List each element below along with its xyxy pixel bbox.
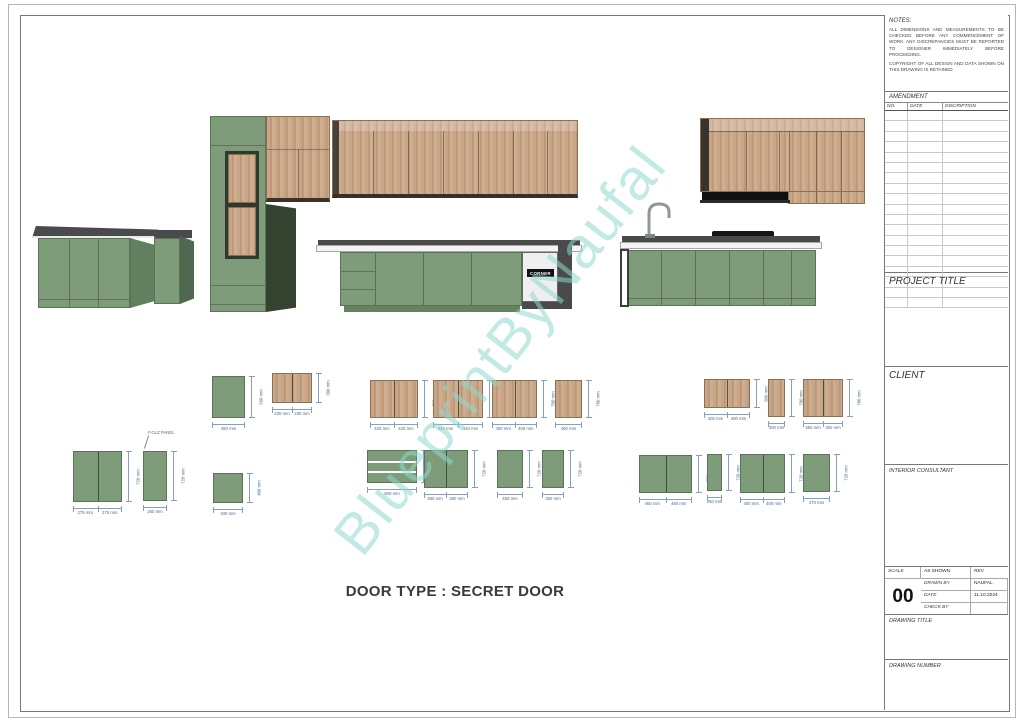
scale-value: AS SHOWN [921, 567, 971, 579]
door-panel-detail: 560 mm450 mm [212, 376, 259, 432]
door-panel-detail: 380 mm230 mm230 mm [272, 373, 326, 417]
notes-label: NOTES: [889, 18, 1004, 24]
width-dimension: 400 mm [213, 509, 243, 510]
wood-door-panel [272, 373, 312, 403]
door-panel-detail: 720 mm350 mm [542, 450, 578, 502]
height-dimension: 720 mm [728, 454, 729, 491]
height-dimension: 780 mm [588, 380, 589, 418]
date-value: 11.10.2024 [971, 591, 1008, 603]
green-door-panel [213, 473, 243, 503]
green-door-panel [497, 450, 523, 488]
width-dimension: 460 mm460 mm [639, 499, 692, 500]
width-dimension: 250 mm [707, 497, 722, 498]
door-panel-detail: 600 mm400 mm400 mm [704, 379, 764, 422]
drawing-title-label: DRAWING TITLE [889, 618, 1004, 624]
width-dimension: 275 mm275 mm [73, 508, 122, 509]
door-panel-detail: 780 mm400 mm400 mm [492, 380, 551, 432]
amendment-col-date: DATE [908, 103, 943, 111]
width-dimension: 470 mm [803, 498, 830, 499]
height-dimension: 560 mm [251, 376, 252, 418]
notes-paragraph-2: COPYRIGHT OF ALL DESIGN AND DATA SHOWN O… [889, 61, 1004, 73]
amendment-section: AMENDMENT NO. DATE DISCRIPTION [885, 92, 1008, 273]
drawn-by-label: DRAWN BY [921, 579, 971, 591]
wood-door-panel [803, 379, 843, 417]
width-dimension: 450 mm [497, 494, 523, 495]
panel-annotation: F.GLZ PANEL [148, 430, 175, 435]
interior-consultant-section: INTERIOR CONSULTANT [885, 465, 1008, 567]
amendment-row [885, 235, 1008, 245]
width-dimension: 400 mm400 mm [492, 424, 537, 425]
green-door-panel [143, 451, 167, 501]
amendment-row [885, 214, 1008, 224]
height-dimension: 780 mm [543, 380, 544, 418]
drawing-number-label: DRAWING NUMBER [889, 663, 1004, 669]
wood-door-panel [704, 379, 750, 408]
height-dimension: 720 mm [173, 451, 174, 501]
width-dimension: 460 mm [555, 424, 582, 425]
amendment-row [885, 246, 1008, 256]
client-label: CLIENT [889, 370, 1004, 381]
door-panel-detail: 780 mm350 mm350 mm [803, 379, 857, 431]
rev-label: REV [971, 567, 1008, 579]
green-door-panel [803, 454, 830, 492]
interior-consultant-label: INTERIOR CONSULTANT [889, 468, 1004, 474]
width-dimension: 400 mm400 mm [704, 414, 750, 415]
door-panel-detail: 720 mm260 mm [143, 451, 181, 515]
door-panel-detail: 720 mm250 mm [707, 454, 736, 505]
drawing-area: CORNER 720 mm275 mm275 mm720 mm260 mm560… [0, 0, 884, 724]
height-dimension: 720 mm [128, 451, 129, 502]
rev-value: 00 [885, 579, 921, 615]
door-panel-detail: 720 mm450 mm [497, 450, 537, 502]
amendment-row [885, 183, 1008, 193]
check-by-value [971, 603, 1008, 615]
amendment-row [885, 121, 1008, 131]
project-title-section: PROJECT TITLE [885, 273, 1008, 367]
amendment-row [885, 204, 1008, 214]
green-door-panel [424, 450, 468, 488]
notes-section: NOTES: ALL DIMENSIONS AND MEASUREMENTS T… [885, 15, 1008, 92]
drawing-caption: DOOR TYPE : SECRET DOOR [320, 583, 590, 600]
height-dimension: 780 mm [849, 379, 850, 417]
amendment-row [885, 256, 1008, 266]
door-panel-detail: 720 mm380 mm380 mm [424, 450, 482, 502]
width-dimension: 380 mm380 mm [424, 494, 468, 495]
faucet-icon [644, 200, 674, 240]
amendment-row [885, 131, 1008, 141]
green-door-panel [212, 376, 245, 418]
width-dimension: 450 mm [212, 424, 245, 425]
height-dimension: 780 mm [424, 380, 425, 418]
green-door-panel [73, 451, 122, 502]
width-dimension: 420 mm420 mm [370, 424, 418, 425]
date-label: DATE [921, 591, 971, 603]
door-panel-detail: 720 mm470 mm [803, 454, 844, 506]
drawn-by-value: NAUFAL [971, 579, 1008, 591]
door-panel-detail: 780 mm420 mm420 mm [370, 380, 432, 432]
height-dimension: 720 mm [836, 454, 837, 492]
height-dimension: 380 mm [318, 373, 319, 403]
project-title-label: PROJECT TITLE [889, 276, 1004, 287]
notes-paragraph-1: ALL DIMENSIONS AND MEASUREMENTS TO BE CH… [889, 27, 1004, 58]
door-panel-detail: 780 mm300 mm [768, 379, 799, 431]
green-door-panel [707, 454, 722, 491]
amendment-col-no: NO. [885, 103, 908, 111]
door-panel-detail: 720 mm275 mm275 mm [73, 451, 136, 516]
width-dimension: 230 mm230 mm [272, 409, 312, 410]
amendment-row [885, 173, 1008, 183]
door-panel-detail: 780 mm460 mm [555, 380, 596, 432]
corner-cabinet-label: CORNER [527, 269, 554, 277]
height-dimension: 720 mm [570, 450, 571, 488]
check-by-label: CHECK BY [921, 603, 971, 615]
height-dimension: 720 mm [791, 454, 792, 493]
door-panel-detail: 720 mm400 mm400 mm [740, 454, 799, 507]
door-details-layer: 720 mm275 mm275 mm720 mm260 mm560 mm450 … [0, 0, 884, 724]
door-panel-detail: 600 mm900 mm [367, 450, 431, 497]
drawing-title-section: DRAWING TITLE [885, 615, 1008, 660]
wood-door-panel [492, 380, 537, 418]
height-dimension: 400 mm [249, 473, 250, 503]
door-panel-detail: 400 mm400 mm [213, 473, 257, 517]
green-door-panel [639, 455, 692, 493]
height-dimension: 720 mm [474, 450, 475, 488]
title-block: NOTES: ALL DIMENSIONS AND MEASUREMENTS T… [884, 15, 1008, 710]
width-dimension: 440 mm440 mm [433, 424, 483, 425]
wood-door-panel [555, 380, 582, 418]
client-section: CLIENT [885, 367, 1008, 465]
width-dimension: 400 mm400 mm [740, 499, 785, 500]
wood-door-panel [370, 380, 418, 418]
drawing-number-section: DRAWING NUMBER [885, 660, 1008, 709]
door-panel-detail: 780 mm440 mm440 mm [433, 380, 497, 432]
height-dimension: 780 mm [489, 380, 490, 418]
width-dimension: 900 mm [367, 489, 417, 490]
height-dimension: 720 mm [529, 450, 530, 488]
scale-label: SCALE [885, 567, 921, 579]
wood-door-panel [433, 380, 483, 418]
wood-door-panel [768, 379, 785, 417]
amendment-col-description: DISCRIPTION [943, 103, 1009, 111]
height-dimension: 780 mm [791, 379, 792, 417]
amendment-row [885, 194, 1008, 204]
width-dimension: 260 mm [143, 507, 167, 508]
width-dimension: 350 mm [542, 494, 564, 495]
height-dimension: 720 mm [698, 455, 699, 493]
amendment-row [885, 225, 1008, 235]
amendment-label: AMENDMENT [885, 92, 1008, 103]
amendment-row [885, 111, 1008, 121]
width-dimension: 350 mm350 mm [803, 423, 843, 424]
green-door-panel [542, 450, 564, 488]
height-dimension: 600 mm [756, 379, 757, 408]
door-panel-detail: 720 mm460 mm460 mm [639, 455, 706, 507]
green-door-panel [740, 454, 785, 493]
width-dimension: 300 mm [768, 423, 785, 424]
amendment-row [885, 152, 1008, 162]
green-door-panel [367, 450, 417, 483]
amendment-row [885, 162, 1008, 172]
scale-section: SCALE AS SHOWN REV DRAWN BY NAUFAL 00 DA… [885, 567, 1008, 615]
amendment-row [885, 142, 1008, 152]
